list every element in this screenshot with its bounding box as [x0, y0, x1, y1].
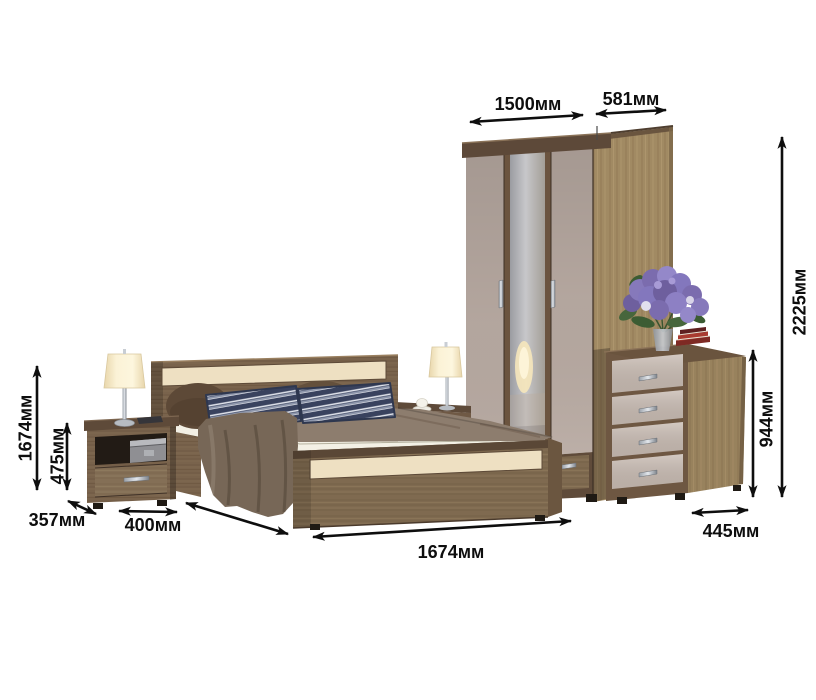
wardrobe-width-label: 1500мм [495, 94, 562, 114]
furniture-dimension-diagram: 1500мм 581мм 2225мм 944мм 445мм 1674мм 4… [0, 0, 816, 700]
nightstand-height-label: 475мм [47, 428, 67, 485]
wardrobe-depth-label: 581мм [603, 89, 660, 109]
dresser-depth-arrow [692, 510, 748, 513]
table-lamp-right [429, 342, 462, 411]
dresser-depth-label: 445мм [703, 521, 760, 541]
nightstand-width-arrow [119, 511, 177, 512]
bed-side-height-label: 1674мм [15, 395, 35, 462]
chest-foot [675, 493, 685, 500]
bed-side-rail [176, 431, 201, 497]
lamp-shade [104, 354, 145, 388]
chest-of-drawers [604, 344, 746, 504]
striped-pillow [298, 383, 395, 423]
bed-foot [535, 515, 545, 521]
nightstand-depth-label: 357мм [29, 510, 86, 530]
lamp-shade [429, 347, 462, 377]
wardrobe-door-handle-right [551, 280, 555, 308]
nightstand-width-label: 400мм [125, 515, 182, 535]
chest-foot [733, 485, 741, 491]
product-scene: 1500мм 581мм 2225мм 944мм 445мм 1674мм 4… [0, 0, 816, 700]
dresser-height-label: 944мм [756, 391, 776, 448]
lamp-base [115, 420, 135, 427]
lamp-stem [123, 386, 127, 423]
nightstand-foot [157, 500, 167, 506]
wardrobe-depth-arrow [596, 110, 666, 114]
wardrobe-door-handle-left [499, 280, 503, 308]
footboard-post [548, 438, 562, 517]
footboard [293, 438, 562, 530]
nightstand-foot [93, 503, 103, 509]
wardrobe-foot [586, 494, 597, 502]
bed-length-label: 1674мм [418, 542, 485, 562]
lamp-stem [446, 377, 449, 409]
wardrobe-width-arrow [470, 115, 583, 122]
book-stack [676, 327, 710, 346]
table-lamp-left [104, 349, 145, 427]
nightstand-left [84, 416, 179, 509]
bed-foot [310, 524, 320, 530]
chest-foot [617, 497, 627, 504]
wardrobe-height-label: 2225мм [789, 269, 809, 336]
